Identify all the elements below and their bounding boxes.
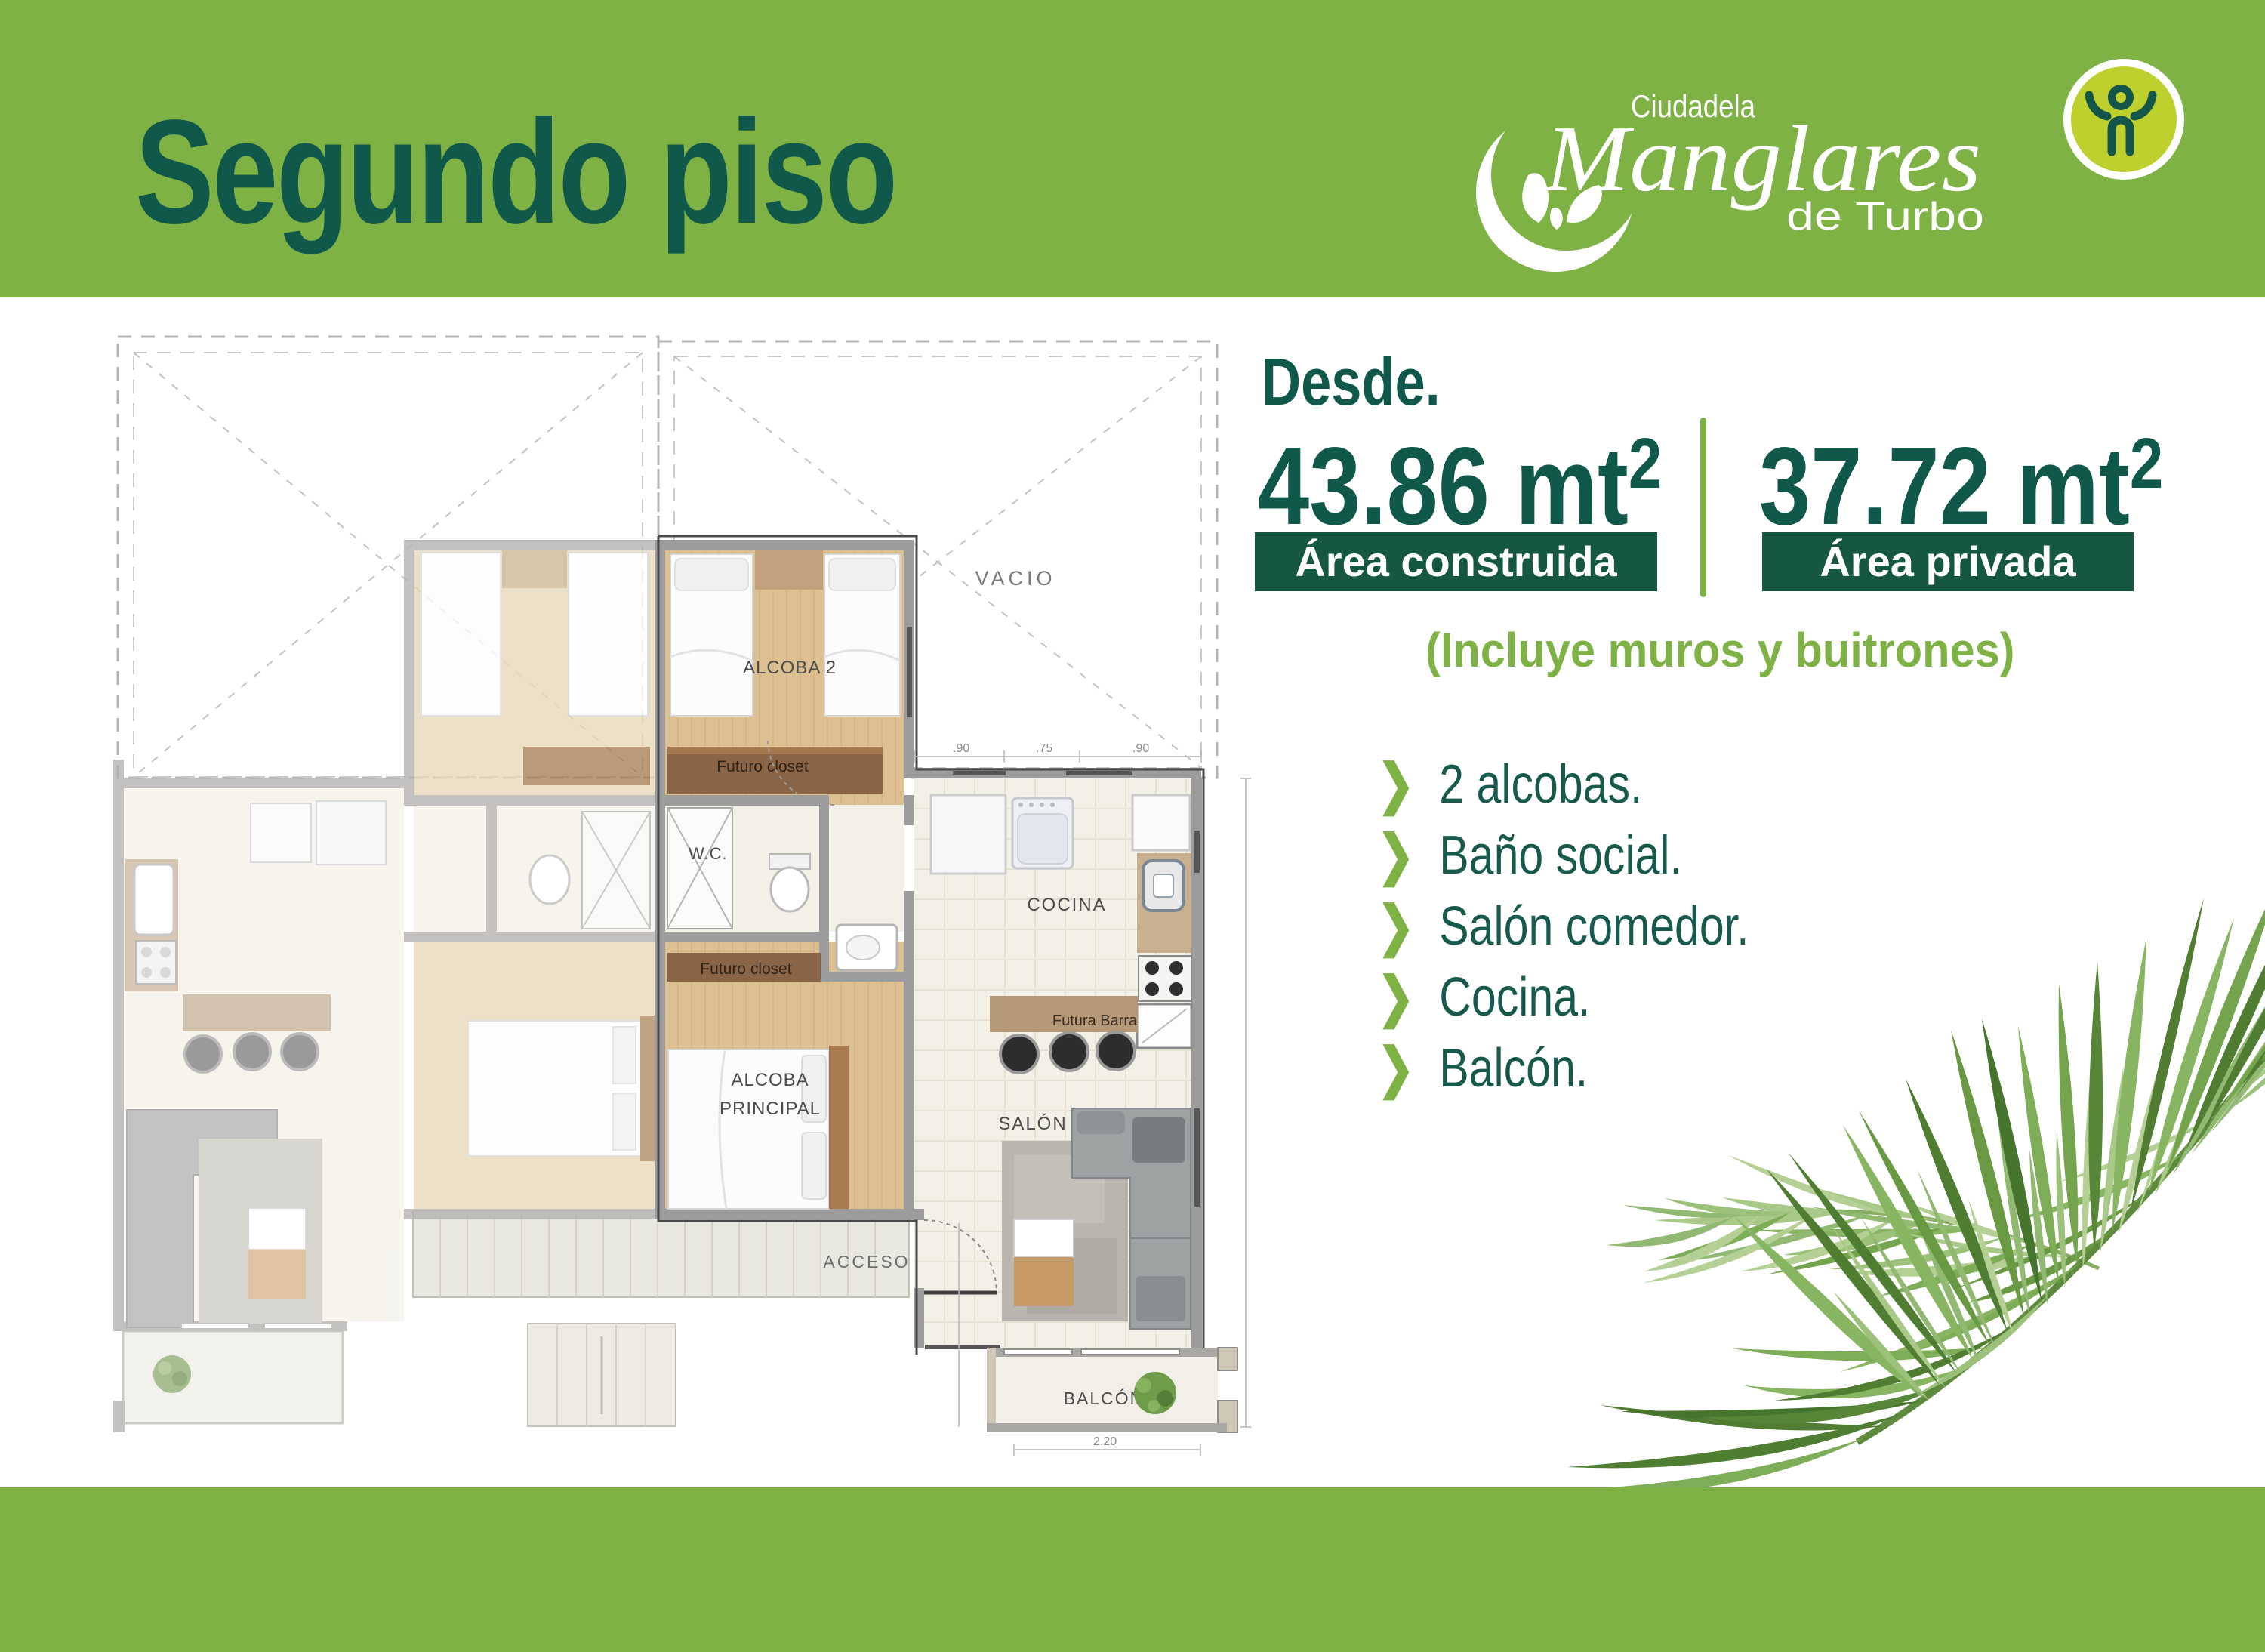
svg-text:.90: .90 <box>1132 742 1149 755</box>
svg-text:VACIO: VACIO <box>975 567 1055 590</box>
svg-text:ALCOBA: ALCOBA <box>731 1070 809 1090</box>
svg-text:de Turbo: de Turbo <box>1786 195 1984 239</box>
svg-text:.90: .90 <box>953 742 969 755</box>
svg-text:.75: .75 <box>1036 742 1052 755</box>
svg-text:ALCOBA 2: ALCOBA 2 <box>743 658 837 678</box>
svg-text:Futura Barra: Futura Barra <box>1052 1012 1138 1029</box>
svg-text:SALÓN: SALÓN <box>998 1114 1067 1134</box>
svg-text:Futuro closet: Futuro closet <box>700 960 792 978</box>
svg-text:ACCESO: ACCESO <box>823 1252 910 1271</box>
svg-text:COCINA: COCINA <box>1027 895 1106 915</box>
svg-text:W.C.: W.C. <box>689 844 728 863</box>
svg-text:PRINCIPAL: PRINCIPAL <box>720 1099 821 1119</box>
svg-text:2.20: 2.20 <box>1093 1435 1117 1448</box>
svg-text:Futuro closet: Futuro closet <box>716 758 809 775</box>
svg-text:BALCÓN: BALCÓN <box>1064 1388 1145 1408</box>
